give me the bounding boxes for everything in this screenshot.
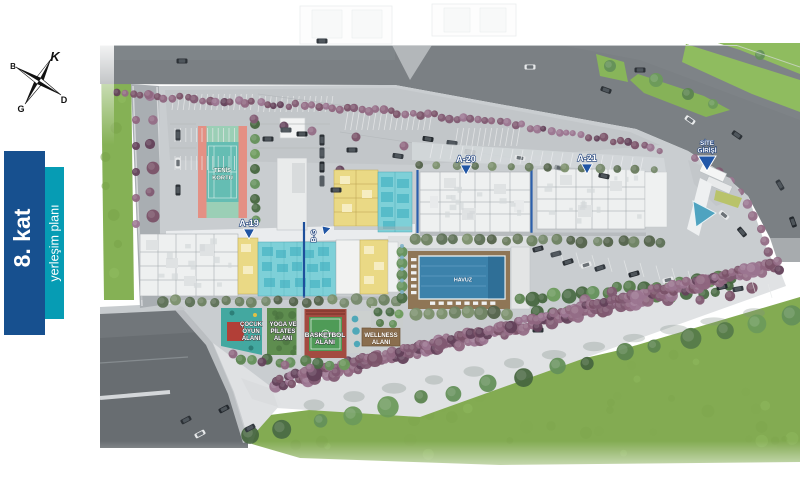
svg-text:GİRİŞİ: GİRİŞİ [698, 147, 717, 155]
svg-text:yerleşim planı: yerleşim planı [48, 204, 62, 281]
svg-text:B: B [10, 62, 16, 71]
svg-text:ALANI: ALANI [274, 336, 293, 342]
svg-text:OYUN: OYUN [242, 329, 259, 335]
svg-text:WELLNESS: WELLNESS [364, 333, 397, 339]
svg-text:KORTU: KORTU [212, 176, 233, 182]
svg-text:BASKETBOL: BASKETBOL [305, 332, 345, 339]
svg-text:A-19: A-19 [239, 218, 259, 228]
svg-text:PİLATES: PİLATES [271, 328, 296, 335]
svg-text:A-21: A-21 [577, 153, 597, 163]
svg-text:D: D [61, 95, 68, 105]
svg-text:ÇOCUK: ÇOCUK [240, 322, 263, 328]
svg-text:A-20: A-20 [456, 154, 476, 164]
svg-text:B-G: B-G [311, 229, 318, 242]
svg-text:YOGA VE: YOGA VE [269, 322, 296, 328]
svg-text:ALANI: ALANI [315, 339, 335, 346]
svg-text:HAVUZ: HAVUZ [454, 278, 473, 284]
svg-text:K: K [50, 49, 61, 64]
svg-text:G: G [17, 104, 24, 114]
svg-text:TENİS: TENİS [214, 167, 231, 174]
svg-text:ALANI: ALANI [372, 340, 391, 346]
svg-text:ALANI: ALANI [242, 336, 261, 342]
svg-text:8. kat: 8. kat [9, 208, 35, 267]
svg-text:SİTE: SİTE [700, 139, 714, 147]
